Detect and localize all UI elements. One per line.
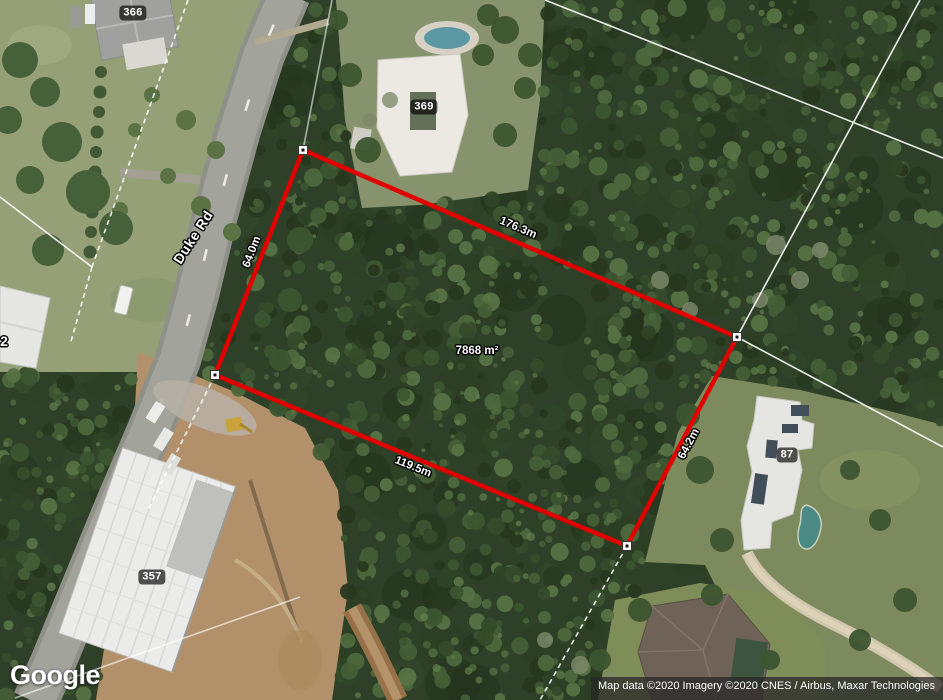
measure-label-edge-left: 64.0m bbox=[241, 235, 264, 270]
measure-label-edge-bottom: 119.5m bbox=[393, 454, 433, 480]
google-logo[interactable]: Google bbox=[10, 660, 100, 691]
parcel-badge-369: 369 bbox=[410, 100, 437, 115]
road-label-duke-rd: Duke Rd bbox=[170, 207, 216, 266]
measure-label-edge-right: 64.2m bbox=[676, 427, 702, 461]
map-labels: 366369357872176.3m64.2m119.5m64.0m7868 m… bbox=[0, 0, 943, 700]
measure-label-edge-top: 176.3m bbox=[498, 215, 539, 241]
measure-area-label: 7868 m² bbox=[456, 345, 499, 357]
parcel-badge-357: 357 bbox=[138, 570, 165, 585]
parcel-badge-87: 87 bbox=[777, 448, 798, 463]
parcel-badge-366: 366 bbox=[119, 6, 146, 21]
street-number-2: 2 bbox=[0, 333, 8, 349]
map-attribution: Map data ©2020 Imagery ©2020 CNES / Airb… bbox=[591, 677, 943, 700]
map-canvas[interactable]: 366369357872176.3m64.2m119.5m64.0m7868 m… bbox=[0, 0, 943, 700]
